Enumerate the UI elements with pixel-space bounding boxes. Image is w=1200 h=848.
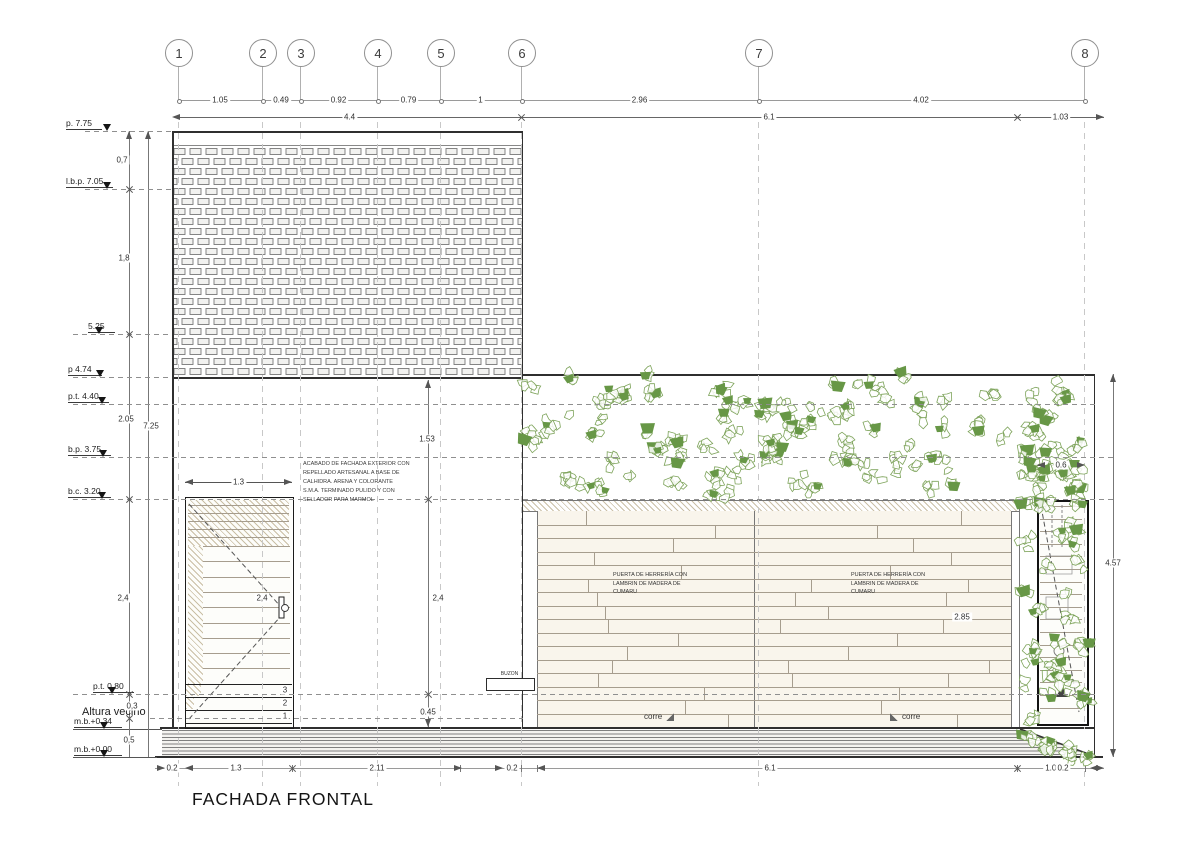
level-marker-icon	[95, 327, 103, 334]
level-marker-icon	[103, 124, 111, 131]
dim-value: 4.4	[342, 113, 357, 122]
dim-tick	[521, 765, 522, 772]
step-number: 1	[281, 712, 289, 721]
dim-xtick	[1013, 764, 1022, 773]
right-door-frame	[1037, 500, 1089, 726]
grid-line	[440, 122, 441, 786]
grid-stem	[262, 65, 263, 100]
gate-plank-line	[537, 565, 1011, 566]
gate-plank-joint	[594, 552, 595, 566]
lintel-band-top	[523, 500, 1020, 501]
dim-tick-circle	[1083, 99, 1088, 104]
dim-value: 0.45	[418, 708, 438, 717]
gate-plank-joint	[673, 538, 674, 552]
gate-plank-joint	[828, 606, 829, 620]
gate-plank-joint	[913, 538, 914, 552]
dim-arrow	[425, 380, 431, 388]
dim-tick-circle	[757, 99, 762, 104]
gate-plank-joint	[792, 673, 793, 687]
mailbox-label: BUZON	[486, 671, 533, 677]
door-label-line: LAMBRIN DE MADERA DE	[851, 580, 925, 589]
gate-plank-joint	[946, 592, 947, 606]
dim-xtick	[125, 185, 134, 194]
grid-stem	[1084, 65, 1085, 100]
door-label-1: PUERTA DE HERRERÍA CON LAMBRIN DE MADERA…	[613, 571, 687, 597]
dim-arrow	[185, 479, 193, 485]
gate-plank-joint	[943, 619, 944, 633]
gate-plank-joint	[627, 646, 628, 660]
gate-plank-joint	[608, 619, 609, 633]
level-line	[73, 334, 172, 335]
gate-plank-joint	[948, 673, 949, 687]
gate-plank-joint	[897, 633, 898, 647]
gate-plank-line	[537, 673, 1011, 674]
facade-finish-note: ACABADO DE FACHADA EXTERIOR CON REPELLAD…	[303, 460, 410, 505]
dim-value: 0,3	[124, 702, 139, 711]
dim-value: 2,4	[254, 594, 269, 603]
door-label-line: CUMARU	[851, 588, 925, 597]
level-marker-icon	[98, 492, 106, 499]
dim-xtick	[424, 495, 433, 504]
dim-tick-circle	[261, 99, 266, 104]
dim-xtick	[517, 113, 526, 122]
dim-arrow	[157, 765, 165, 771]
grid-bubble: 4	[364, 39, 392, 67]
level-line	[73, 694, 1095, 695]
slide-label-left: corre	[644, 712, 674, 721]
note-line: S.M.A. TERMINADO PULIDO Y CON	[303, 487, 410, 496]
grid-stem	[521, 65, 522, 100]
dim-value: 2,4	[430, 594, 445, 603]
dim-xtick	[1013, 113, 1022, 122]
grid-bubble: 3	[287, 39, 315, 67]
dim-value: 0.2	[504, 764, 519, 773]
gate-plank-joint	[989, 660, 990, 674]
vdim-line	[428, 380, 429, 727]
dim-arrow	[145, 131, 151, 139]
elevation-drawing: ACABADO DE FACHADA EXTERIOR CON REPELLAD…	[0, 0, 1200, 848]
level-line	[73, 757, 157, 758]
grid-stem	[758, 65, 759, 100]
right-volume-top-edge	[523, 374, 1095, 376]
dim-value: 0.2	[1055, 764, 1070, 773]
wall-top-inner-line	[172, 145, 523, 146]
gate-plank-line	[537, 579, 1011, 580]
grid-bubble: 2	[249, 39, 277, 67]
grid-line	[377, 122, 378, 786]
brick-bottom-edge	[172, 377, 523, 379]
step-number: 3	[281, 686, 289, 695]
dim-arrow	[1096, 114, 1104, 120]
dim-arrow	[537, 765, 545, 771]
gate-plank-joint	[795, 592, 796, 606]
grid-line	[262, 122, 263, 786]
door-label-line: PUERTA DE HERRERÍA CON	[613, 571, 687, 580]
slide-label-text: corre	[902, 712, 920, 721]
note-line: ACABADO DE FACHADA EXTERIOR CON	[303, 460, 410, 469]
dim-arrow	[425, 719, 431, 727]
dim-value: 0,5	[121, 736, 136, 745]
dim-arrow	[1110, 749, 1116, 757]
grid-line	[300, 122, 301, 786]
dim-value: 0.6	[1053, 461, 1068, 470]
gate-plank-line	[537, 700, 1011, 701]
level-line	[73, 377, 172, 378]
gate-plank-joint	[598, 673, 599, 687]
grid-bubble: 7	[745, 39, 773, 67]
dim-xtick	[288, 764, 297, 773]
gate-plank-line	[537, 646, 1011, 647]
level-marker-icon	[96, 370, 104, 377]
gate-plank-line	[537, 525, 1011, 526]
dim-arrow	[495, 765, 503, 771]
grid-line	[758, 122, 759, 786]
dim-arrow	[1077, 462, 1085, 468]
gate-plank-joint	[612, 660, 613, 674]
dim-tick-circle	[299, 99, 304, 104]
gate-plank-joint	[586, 511, 587, 525]
gate-plank-joint	[588, 579, 589, 593]
dim-tick-circle	[520, 99, 525, 104]
slide-label-right: corre	[890, 712, 920, 721]
dim-value: 0.79	[399, 96, 419, 105]
door-label-2: PUERTA DE HERRERÍA CON LAMBRIN DE MADERA…	[851, 571, 925, 597]
level-line	[73, 457, 1113, 458]
dim-value: 1.03	[1051, 113, 1071, 122]
slide-label-text: corre	[644, 712, 662, 721]
vdim-line	[148, 131, 149, 757]
grid-bubble: 5	[427, 39, 455, 67]
gate-plank-joint	[957, 714, 958, 728]
dim-line	[155, 768, 1104, 769]
base-line	[155, 756, 1103, 758]
door-label-line: LAMBRIN DE MADERA DE	[613, 580, 687, 589]
dim-tick-circle	[376, 99, 381, 104]
dim-value: 7.25	[141, 422, 161, 431]
gate-plank-joint	[811, 579, 812, 593]
gate-plank-line	[537, 538, 1011, 539]
wall-top-edge	[172, 131, 523, 133]
note-line: CALHIDRA. ARENA Y COLORANTE	[303, 478, 410, 487]
slide-direction-icon	[890, 713, 898, 721]
gate-plank-joint	[788, 660, 789, 674]
dim-value: 1.53	[417, 435, 437, 444]
grid-line	[178, 122, 179, 786]
grid-bubble: 1	[165, 39, 193, 67]
gate-plank-line	[537, 606, 1011, 607]
grid-stem	[300, 65, 301, 100]
dim-arrow	[185, 765, 193, 771]
dim-arrow	[1037, 462, 1045, 468]
gate-plank-joint	[678, 633, 679, 647]
dim-tick-circle	[177, 99, 182, 104]
dim-value: 2.11	[368, 764, 387, 773]
level-line	[73, 404, 1095, 405]
step-number: 2	[281, 699, 289, 708]
gate-plank-line	[537, 633, 1011, 634]
dim-arrow	[1090, 765, 1098, 771]
brick-wall-texture	[172, 146, 523, 378]
level-marker-icon	[100, 750, 108, 757]
dim-value: 1.05	[210, 96, 230, 105]
wall-left-edge	[172, 131, 174, 728]
gate-plank-line	[537, 687, 1011, 688]
gate-plank-joint	[951, 552, 952, 566]
dim-value: 0.2	[164, 764, 179, 773]
level-marker-icon	[99, 450, 107, 457]
grid-stem	[377, 65, 378, 100]
grid-bubble: 6	[508, 39, 536, 67]
gate-plank-line	[537, 714, 1011, 715]
dim-arrow	[172, 114, 180, 120]
plinth-stripes	[162, 730, 1093, 756]
dim-xtick	[125, 690, 134, 699]
level-marker-icon	[108, 687, 116, 694]
gate-plank-joint	[877, 525, 878, 539]
level-marker-icon	[100, 722, 108, 729]
door-label-line: PUERTA DE HERRERÍA CON	[851, 571, 925, 580]
dim-value: 2.96	[630, 96, 650, 105]
right-volume-right-edge	[1094, 374, 1096, 757]
gate-plank-joint	[881, 700, 882, 714]
dim-value: 4.02	[911, 96, 931, 105]
dim-value: 1	[476, 96, 484, 105]
dim-xtick	[424, 690, 433, 699]
dim-value: 0,7	[114, 156, 129, 165]
dim-value: 6.1	[762, 764, 777, 773]
level-marker-icon	[98, 397, 106, 404]
dim-xtick	[125, 714, 134, 723]
dim-value: 4.57	[1103, 559, 1123, 568]
dim-arrow	[1110, 374, 1116, 382]
dim-value: 1,8	[116, 254, 131, 263]
level-line	[73, 499, 1113, 500]
gate-plank-joint	[597, 592, 598, 606]
dim-tick-circle	[439, 99, 444, 104]
gate-right-jamb	[1011, 511, 1012, 728]
note-line: REPELLADO ARTESANAL A BASE DE	[303, 469, 410, 478]
mailbox	[486, 678, 535, 691]
dim-value: 2.05	[116, 415, 136, 424]
gate-plank-joint	[780, 619, 781, 633]
dim-value: 0.49	[271, 96, 291, 105]
dim-xtick	[125, 330, 134, 339]
gate-plank-line	[537, 592, 1011, 593]
level-label: m.b.+0.00	[74, 744, 122, 756]
dim-arrow	[454, 765, 462, 771]
dim-arrow	[284, 479, 292, 485]
dim-value: 1.3	[231, 478, 246, 487]
dim-value: 1.3	[228, 764, 243, 773]
dim-value: 2,4	[115, 594, 130, 603]
dim-tick	[1085, 765, 1086, 772]
drawing-title: FACHADA FRONTAL	[192, 789, 374, 810]
gate-plank-joint	[968, 579, 969, 593]
grid-line	[1084, 122, 1085, 786]
gate-plank-line	[537, 552, 1011, 553]
gate-plank-joint	[605, 606, 606, 620]
level-marker-icon	[103, 182, 111, 189]
dim-value: 2.85	[952, 613, 972, 622]
gate-plank-joint	[848, 646, 849, 660]
grid-stem	[178, 65, 179, 100]
dim-value: 6.1	[761, 113, 776, 122]
dim-value: 0.92	[329, 96, 349, 105]
dim-xtick	[125, 495, 134, 504]
door-label-line: CUMARU	[613, 588, 687, 597]
lintel-hatch-band	[523, 500, 1020, 511]
grid-bubble: 8	[1071, 39, 1099, 67]
slide-direction-icon	[666, 713, 674, 721]
vdim-line	[129, 131, 130, 757]
gate-plank-line	[537, 660, 1011, 661]
grid-stem	[440, 65, 441, 100]
gate-plank-joint	[961, 511, 962, 525]
dim-arrow	[126, 131, 132, 139]
neighbor-height-line	[150, 718, 523, 719]
level-label: p. 7.75	[66, 118, 102, 130]
note-line: SELLADOR PARA MARMOL	[303, 496, 410, 505]
gate-plank-joint	[715, 525, 716, 539]
gate-plank-joint	[728, 714, 729, 728]
gate-plank-joint	[685, 700, 686, 714]
